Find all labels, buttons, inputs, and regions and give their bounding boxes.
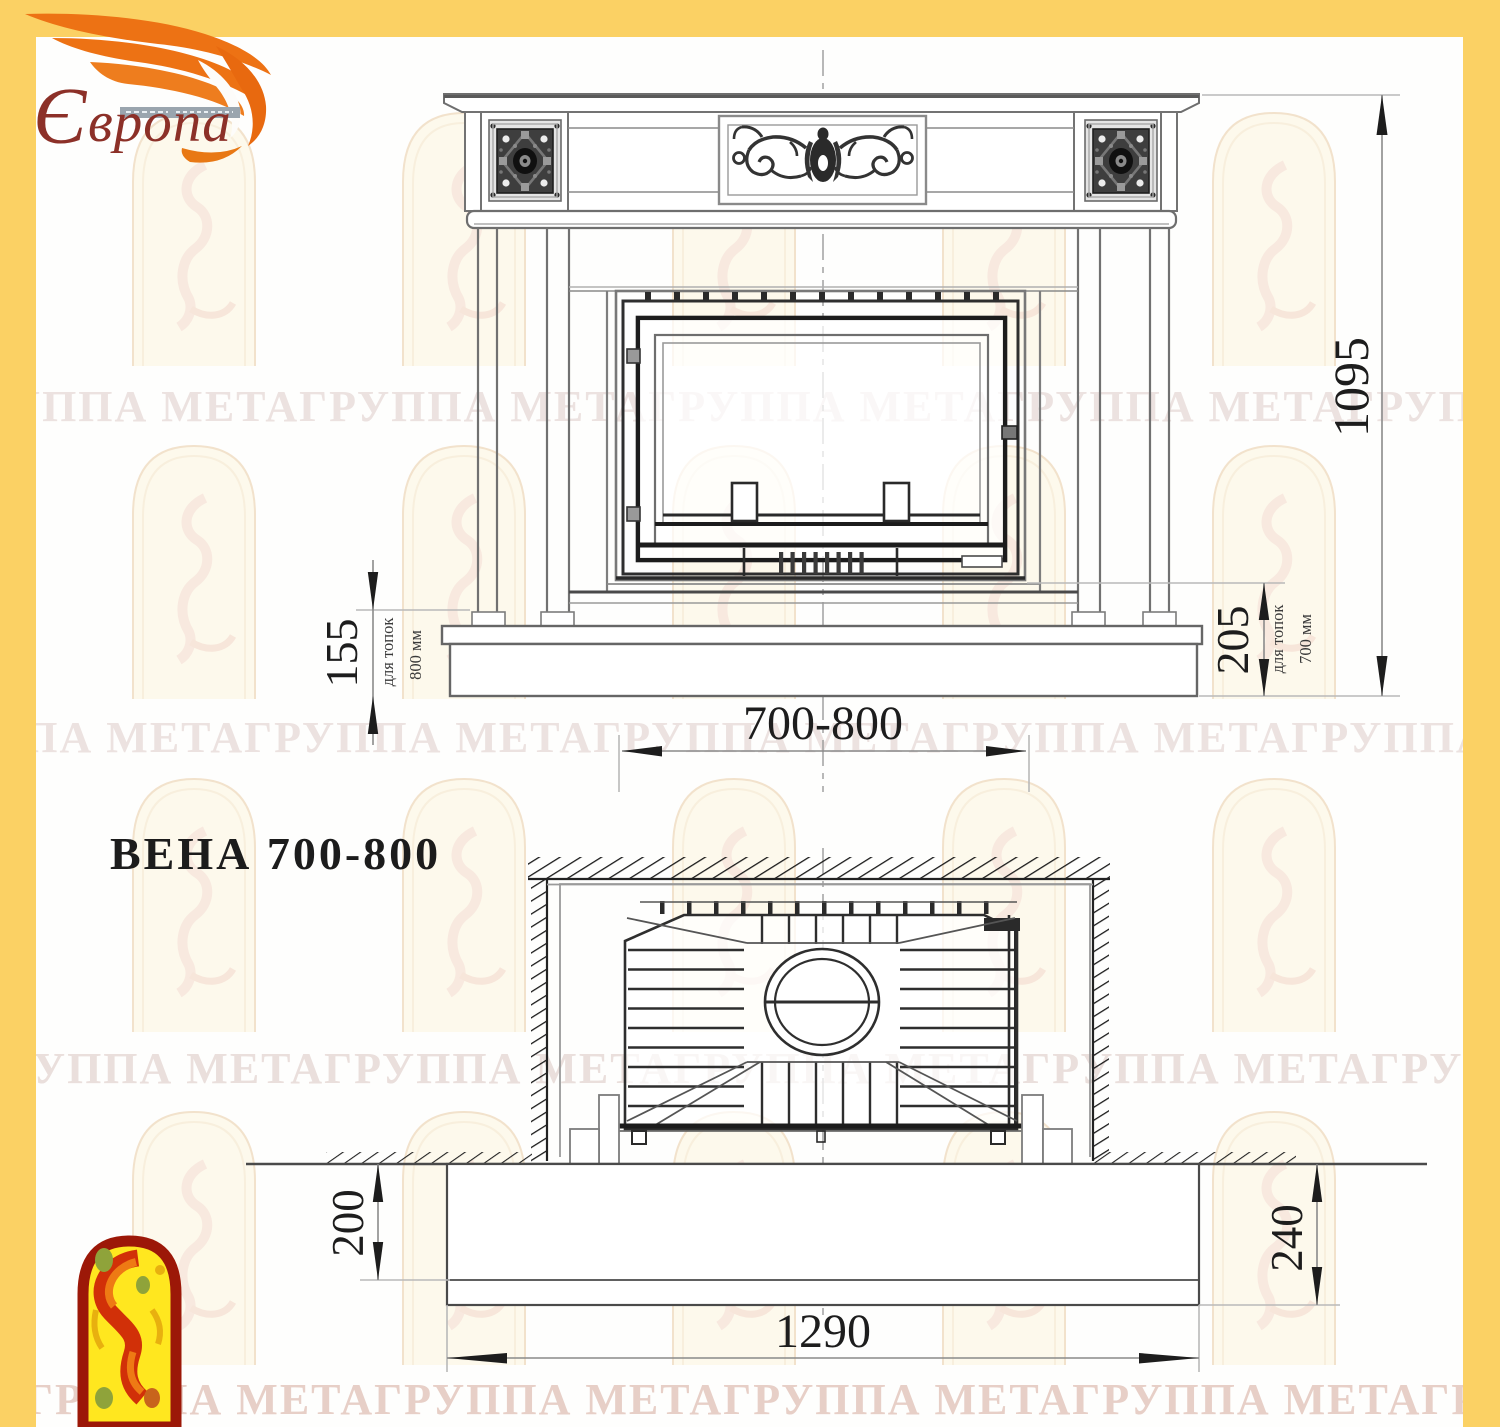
svg-text:1095: 1095 [1323,337,1379,437]
svg-text:вропа: вропа [88,91,232,154]
svg-text:для топок: для топок [1268,604,1287,674]
svg-text:ГРУППА МЕТАГРУППА МЕТАГРУППА М: ГРУППА МЕТАГРУППА МЕТАГРУППА МЕТАГРУППА … [25,1375,1500,1424]
svg-text:Є: Є [33,73,88,161]
svg-text:1290: 1290 [775,1305,871,1358]
svg-text:700 мм: 700 мм [1296,614,1315,664]
svg-text:для топок: для топок [378,617,397,687]
svg-text:800 мм: 800 мм [406,630,425,680]
svg-text:205: 205 [1207,606,1258,675]
svg-text:200: 200 [323,1189,373,1257]
svg-text:700-800: 700-800 [743,697,903,750]
svg-text:155: 155 [316,619,367,688]
svg-text:ВЕНА 700-800: ВЕНА 700-800 [110,828,441,879]
svg-text:240: 240 [1262,1204,1312,1272]
